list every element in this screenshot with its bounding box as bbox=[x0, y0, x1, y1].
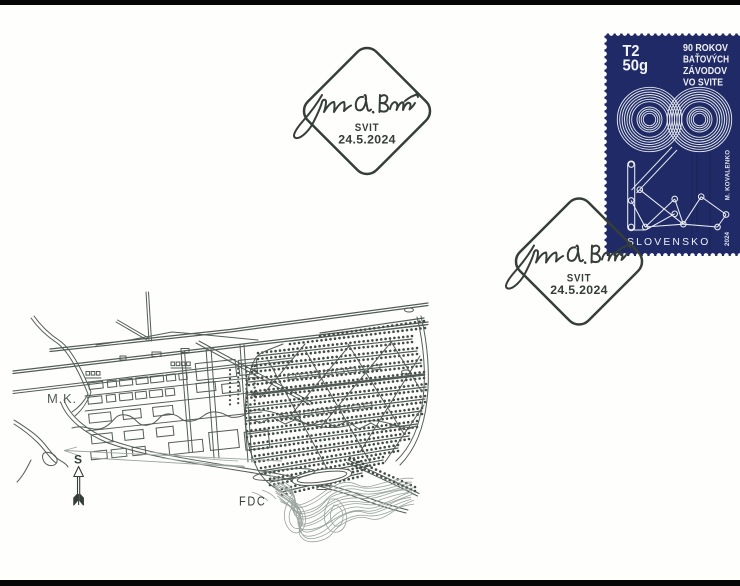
svg-text:M. KOVALENKO: M. KOVALENKO bbox=[725, 150, 732, 201]
svg-text:FDC: FDC bbox=[239, 494, 267, 509]
svg-text:BAŤOVÝCH: BAŤOVÝCH bbox=[683, 53, 729, 66]
svg-text:ZÁVODOV: ZÁVODOV bbox=[683, 64, 727, 77]
svg-text:2024: 2024 bbox=[724, 231, 731, 246]
svg-text:VO SVITE: VO SVITE bbox=[683, 77, 723, 89]
svg-text:S: S bbox=[74, 453, 82, 467]
svg-text:SLOVENSKO: SLOVENSKO bbox=[627, 236, 711, 248]
svg-text:M.K.: M.K. bbox=[47, 391, 77, 406]
svg-text:90 ROKOV: 90 ROKOV bbox=[683, 42, 728, 54]
svg-text:50g: 50g bbox=[623, 58, 649, 75]
